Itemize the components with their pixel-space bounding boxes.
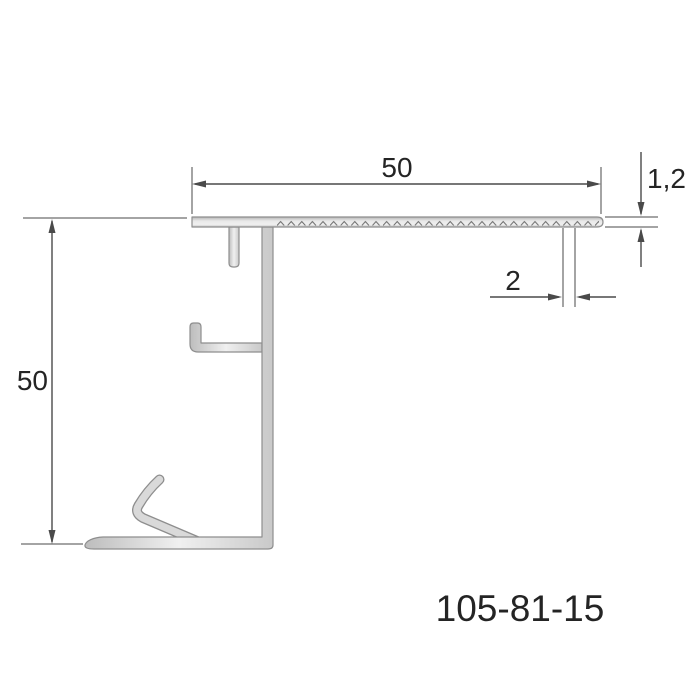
profile-top-stub (229, 227, 239, 267)
arrow-left-icon (192, 181, 206, 188)
flange-serration (277, 220, 599, 227)
profile-wall-and-foot (85, 227, 273, 549)
arrow-up-icon (638, 228, 645, 242)
arrow-right-icon (587, 181, 601, 188)
part-number: 105-81-15 (436, 588, 605, 629)
profile-shape (85, 217, 603, 549)
dim-top-width-label: 50 (381, 152, 412, 183)
arrow-down-icon (638, 202, 645, 216)
dimension-height: 50 (17, 218, 187, 544)
technical-drawing: 50 50 1,2 2 (0, 0, 700, 700)
dim-height-label: 50 (17, 365, 48, 396)
arrow-left-icon (576, 294, 590, 301)
dimension-top-width: 50 (192, 152, 601, 214)
dimension-thickness: 1,2 (605, 152, 686, 267)
arrow-down-icon (49, 530, 56, 544)
arrow-right-icon (548, 294, 562, 301)
dim-thickness-label: 1,2 (647, 163, 686, 194)
profile-hook-arm (190, 323, 262, 352)
dim-slot-label: 2 (505, 265, 521, 296)
profile-drawing-svg: 50 50 1,2 2 (0, 0, 700, 700)
arrow-up-icon (49, 219, 56, 233)
dimension-slot: 2 (490, 228, 616, 307)
